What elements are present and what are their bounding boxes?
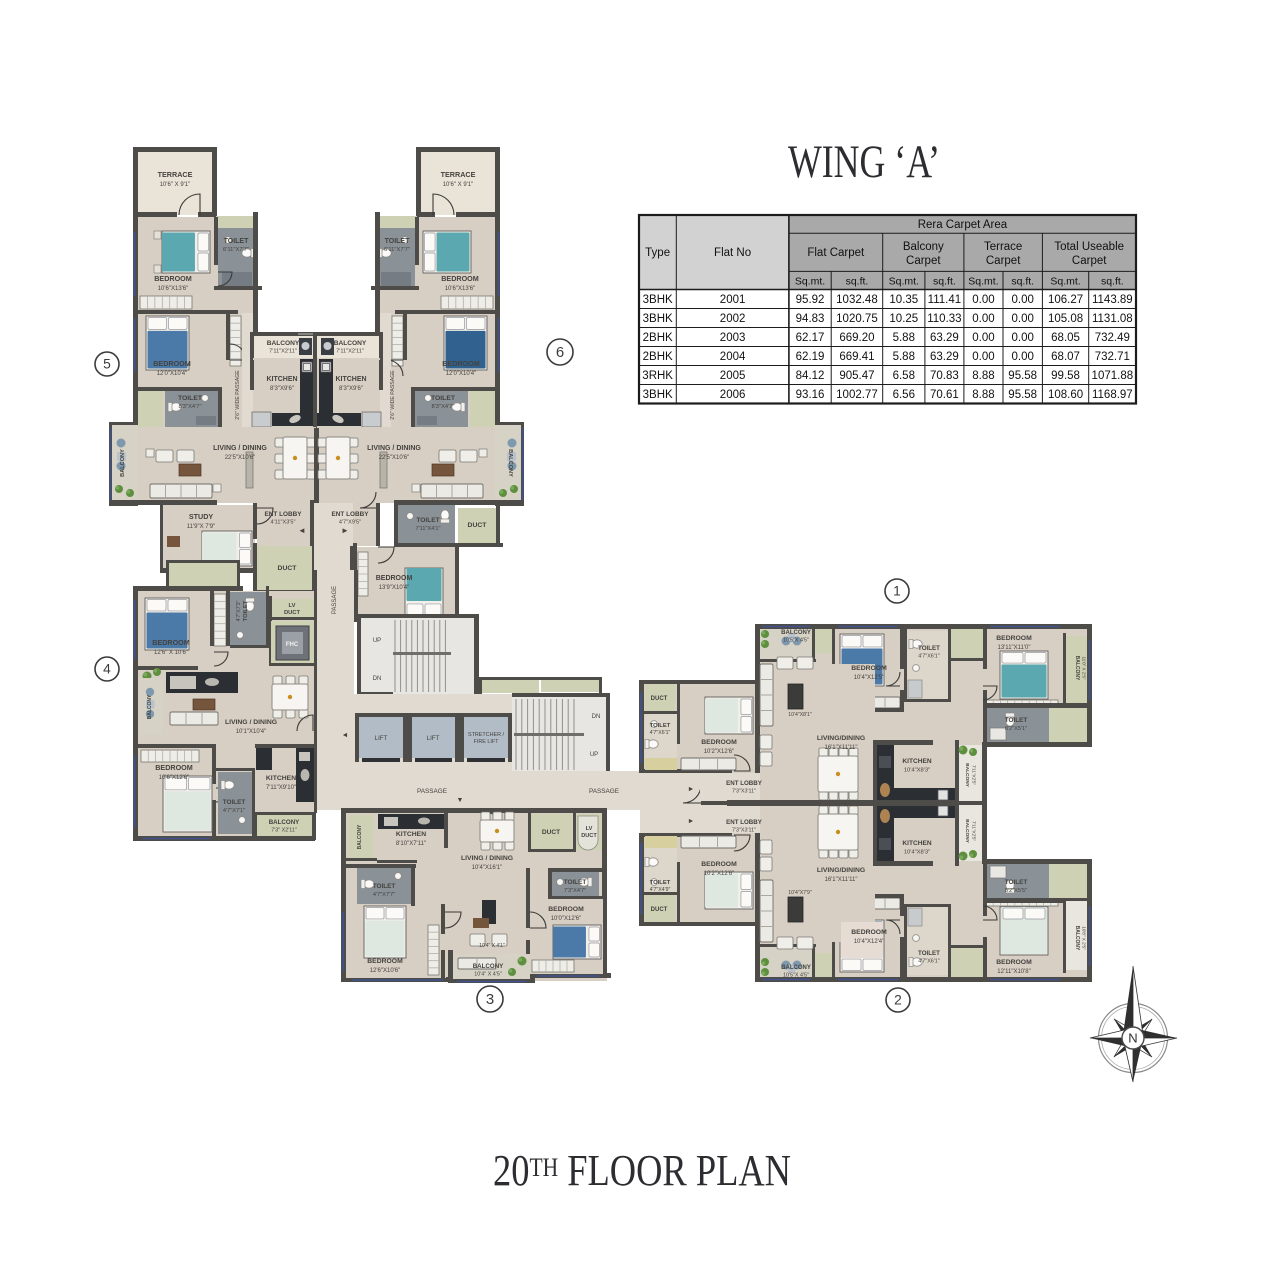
svg-text:62.19: 62.19: [796, 351, 825, 363]
svg-text:2001: 2001: [720, 294, 746, 306]
svg-text:◄: ◄: [298, 526, 306, 535]
svg-text:2002: 2002: [720, 313, 746, 325]
svg-text:13'11"X11'0": 13'11"X11'0": [997, 645, 1030, 651]
svg-text:2005: 2005: [720, 370, 746, 382]
svg-text:TERRACE: TERRACE: [441, 170, 476, 179]
svg-text:10'6"X13'6": 10'6"X13'6": [445, 286, 476, 292]
svg-text:0.00: 0.00: [972, 313, 994, 325]
svg-text:2BHK: 2BHK: [643, 351, 673, 363]
svg-text:4'7"X6'1": 4'7"X6'1": [918, 959, 940, 965]
svg-text:Carpet: Carpet: [986, 255, 1021, 267]
svg-text:1071.88: 1071.88: [1092, 370, 1134, 382]
svg-text:95.92: 95.92: [796, 294, 825, 306]
svg-text:LV: LV: [289, 603, 296, 609]
svg-text:11'9"X 7'9": 11'9"X 7'9": [187, 524, 215, 530]
svg-text:BALCONY: BALCONY: [964, 819, 970, 844]
svg-text:13'9"X10'4": 13'9"X10'4": [379, 585, 410, 591]
svg-text:4'7"X7'1": 4'7"X7'1": [223, 808, 245, 814]
svg-text:DN: DN: [373, 676, 382, 682]
svg-text:10'4" X 4'5": 10'4" X 4'5": [474, 972, 502, 978]
svg-text:63.29: 63.29: [930, 332, 959, 344]
svg-text:4'7"X9'5": 4'7"X9'5": [339, 520, 361, 526]
svg-text:PASSAGE: PASSAGE: [417, 788, 447, 795]
svg-text:8.88: 8.88: [972, 389, 994, 401]
svg-text:6.56: 6.56: [893, 389, 915, 401]
svg-text:TOILET: TOILET: [385, 238, 410, 245]
svg-text:95.58: 95.58: [1008, 370, 1037, 382]
svg-text:FHC: FHC: [286, 642, 299, 648]
svg-text:7'11"X2'5": 7'11"X2'5": [972, 821, 977, 841]
svg-text:7'11"X9'10": 7'11"X9'10": [266, 785, 296, 791]
svg-text:10'4"X8'3": 10'4"X8'3": [904, 850, 930, 856]
svg-text:94.83: 94.83: [796, 313, 825, 325]
svg-text:4'7"X7'7": 4'7"X7'7": [373, 892, 395, 898]
svg-text:UP: UP: [373, 638, 381, 644]
svg-text:TOILET: TOILET: [1005, 717, 1028, 724]
svg-text:DUCT: DUCT: [284, 610, 301, 616]
svg-text:Sq.mt.: Sq.mt.: [968, 276, 998, 288]
svg-text:BALCONY: BALCONY: [964, 763, 970, 788]
svg-text:ENT LOBBY: ENT LOBBY: [265, 511, 303, 518]
svg-text:2004: 2004: [720, 351, 746, 363]
svg-text:Sq.mt.: Sq.mt.: [1050, 276, 1080, 288]
svg-text:LIVING / DINING: LIVING / DINING: [225, 719, 277, 726]
svg-text:BALCONY: BALCONY: [267, 340, 300, 347]
svg-text:732.71: 732.71: [1095, 351, 1130, 363]
svg-text:10'4"X7'9": 10'4"X7'9": [788, 890, 812, 896]
svg-text:63.29: 63.29: [930, 351, 959, 363]
svg-text:TERRACE: TERRACE: [158, 170, 193, 179]
svg-text:DN: DN: [592, 714, 601, 720]
svg-text:BEDROOM: BEDROOM: [441, 274, 479, 283]
svg-text:sq.ft.: sq.ft.: [1011, 276, 1034, 288]
svg-text:Terrace: Terrace: [984, 241, 1022, 253]
svg-text:ENT LOBBY: ENT LOBBY: [332, 511, 370, 518]
svg-text:Total Useable: Total Useable: [1054, 241, 1124, 253]
svg-text:BEDROOM: BEDROOM: [367, 958, 403, 965]
svg-text:10'2"X12'6": 10'2"X12'6": [704, 871, 735, 877]
svg-text:0.00: 0.00: [972, 294, 994, 306]
svg-text:BEDROOM: BEDROOM: [851, 665, 887, 672]
svg-text:5: 5: [103, 357, 111, 372]
svg-text:6'11"X7'7": 6'11"X7'7": [384, 247, 410, 253]
svg-text:0.00: 0.00: [972, 332, 994, 344]
svg-text:BALCONY: BALCONY: [269, 819, 300, 826]
svg-text:10'4"X12'4": 10'4"X12'4": [854, 939, 885, 945]
svg-text:7'11"X2'5": 7'11"X2'5": [972, 765, 977, 785]
svg-text:TOILET: TOILET: [650, 880, 671, 886]
svg-text:LIFT: LIFT: [427, 735, 440, 742]
svg-text:BALCONY: BALCONY: [357, 824, 363, 849]
svg-text:BEDROOM: BEDROOM: [851, 929, 887, 936]
svg-text:Balcony: Balcony: [903, 241, 944, 253]
svg-text:0.00: 0.00: [972, 351, 994, 363]
svg-text:1: 1: [893, 584, 901, 599]
svg-text:10'1"X10'4": 10'1"X10'4": [236, 729, 267, 735]
svg-text:7'11"X4'1": 7'11"X4'1": [416, 526, 441, 532]
svg-text:16'1"X11'11": 16'1"X11'11": [824, 877, 857, 883]
svg-text:DUCT: DUCT: [651, 907, 668, 913]
svg-text:0.00: 0.00: [1012, 332, 1034, 344]
svg-text:DUCT: DUCT: [542, 829, 560, 836]
svg-text:2006: 2006: [720, 389, 746, 401]
svg-text:KITCHEN: KITCHEN: [902, 758, 932, 765]
svg-text:10'4"X16'1": 10'4"X16'1": [472, 865, 503, 871]
svg-text:1168.97: 1168.97: [1092, 389, 1133, 401]
svg-text:1143.89: 1143.89: [1092, 294, 1133, 306]
svg-text:106.27: 106.27: [1048, 294, 1083, 306]
svg-text:PASSAGE: PASSAGE: [332, 586, 338, 614]
svg-text:7'11"X2'11": 7'11"X2'11": [336, 349, 364, 355]
svg-text:732.49: 732.49: [1095, 332, 1130, 344]
svg-text:10'5"X 4'5": 10'5"X 4'5": [783, 638, 809, 644]
svg-text:110.33: 110.33: [927, 313, 961, 325]
svg-text:BEDROOM: BEDROOM: [442, 359, 480, 368]
svg-text:4'11"X3'5": 4'11"X3'5": [271, 520, 296, 526]
svg-text:Rera Carpet Area: Rera Carpet Area: [918, 219, 1008, 231]
svg-text:BALCONY: BALCONY: [507, 449, 513, 477]
svg-text:7'11"X2'11": 7'11"X2'11": [269, 349, 297, 355]
svg-text:108.60: 108.60: [1048, 389, 1083, 401]
svg-text:16'1"X11'11": 16'1"X11'11": [824, 745, 857, 751]
svg-text:ENT LOBBY: ENT LOBBY: [726, 780, 763, 787]
svg-text:UP: UP: [590, 752, 598, 758]
svg-text:99.58: 99.58: [1051, 370, 1080, 382]
svg-text:669.41: 669.41: [839, 351, 874, 363]
svg-text:8'3"X4'7": 8'3"X4'7": [178, 404, 201, 410]
svg-text:5.88: 5.88: [893, 332, 915, 344]
svg-text:BEDROOM: BEDROOM: [376, 575, 413, 582]
svg-text:0.00: 0.00: [1012, 313, 1034, 325]
svg-text:BALCONY: BALCONY: [473, 963, 504, 970]
svg-text:Sq.mt.: Sq.mt.: [795, 276, 825, 288]
svg-text:LIVING / DINING: LIVING / DINING: [461, 855, 513, 862]
svg-text:TOILET: TOILET: [223, 799, 246, 806]
svg-text:4: 4: [103, 662, 111, 677]
svg-text:12'6" X 10'6": 12'6" X 10'6": [154, 650, 188, 656]
svg-text:BEDROOM: BEDROOM: [152, 638, 190, 647]
svg-text:BALCONY: BALCONY: [1074, 656, 1080, 681]
svg-text:10'6" X 9'1": 10'6" X 9'1": [160, 182, 191, 188]
svg-text:TOILET: TOILET: [224, 238, 249, 245]
svg-text:2003: 2003: [720, 332, 746, 344]
svg-text:22'5"X10'6": 22'5"X10'6": [225, 455, 256, 461]
svg-text:1032.48: 1032.48: [836, 294, 878, 306]
svg-text:3BHK: 3BHK: [643, 294, 673, 306]
svg-text:8'3"X9'6": 8'3"X9'6": [339, 386, 363, 392]
svg-text:BEDROOM: BEDROOM: [154, 274, 192, 283]
svg-text:5.88: 5.88: [893, 351, 915, 363]
svg-text:10'6" X 9'1": 10'6" X 9'1": [443, 182, 474, 188]
svg-text:3BHK: 3BHK: [643, 313, 673, 325]
svg-text:▼: ▼: [457, 797, 464, 804]
svg-text:111.41: 111.41: [928, 294, 961, 306]
svg-text:8'2"X5'5": 8'2"X5'5": [1005, 888, 1027, 894]
svg-text:10.35: 10.35: [889, 294, 918, 306]
svg-text:70.61: 70.61: [930, 389, 959, 401]
svg-text:TOILET: TOILET: [918, 950, 940, 957]
svg-text:12'0"X10'4": 12'0"X10'4": [446, 371, 477, 377]
svg-text:BALCONY: BALCONY: [781, 965, 811, 971]
svg-text:1020.75: 1020.75: [836, 313, 878, 325]
svg-text:BALCONY: BALCONY: [1074, 926, 1080, 951]
svg-text:DUCT: DUCT: [468, 522, 488, 529]
svg-text:TOILET: TOILET: [650, 723, 671, 729]
svg-text:3RHK: 3RHK: [642, 370, 673, 382]
svg-text:BALCONY: BALCONY: [781, 630, 811, 636]
svg-text:93.16: 93.16: [796, 389, 825, 401]
svg-text:TOILET: TOILET: [1005, 879, 1028, 886]
svg-text:3BHK: 3BHK: [643, 389, 673, 401]
svg-text:68.05: 68.05: [1051, 332, 1080, 344]
svg-text:►: ►: [688, 818, 695, 825]
svg-text:WING ‘A’: WING ‘A’: [788, 136, 940, 188]
svg-text:1002.77: 1002.77: [836, 389, 878, 401]
svg-text:BEDROOM: BEDROOM: [153, 359, 191, 368]
svg-text:4'7"X7'3": 4'7"X7'3": [236, 601, 242, 622]
svg-text:6: 6: [556, 344, 564, 361]
svg-text:KITCHEN: KITCHEN: [335, 376, 366, 383]
svg-text:10'6"X13'6": 10'6"X13'6": [158, 286, 189, 292]
svg-text:◄: ◄: [342, 732, 349, 739]
svg-text:BEDROOM: BEDROOM: [155, 763, 193, 772]
svg-text:4'7"X6'1": 4'7"X6'1": [918, 654, 940, 660]
svg-text:N: N: [1128, 1031, 1137, 1046]
svg-text:LIFT: LIFT: [375, 735, 388, 742]
svg-text:1131.08: 1131.08: [1092, 313, 1133, 325]
svg-text:4'7"X6'1": 4'7"X6'1": [650, 730, 671, 736]
svg-text:TOILET: TOILET: [178, 395, 203, 402]
svg-text:BEDROOM: BEDROOM: [701, 861, 737, 868]
svg-text:68.07: 68.07: [1051, 351, 1080, 363]
svg-text:10.25: 10.25: [889, 313, 918, 325]
svg-text:10'5"X 4'5": 10'5"X 4'5": [783, 973, 809, 979]
svg-text:DUCT: DUCT: [278, 565, 298, 572]
svg-text:BEDROOM: BEDROOM: [996, 959, 1032, 966]
svg-text:sq.ft.: sq.ft.: [933, 276, 956, 288]
svg-text:BEDROOM: BEDROOM: [701, 739, 737, 746]
svg-text:10'4"X12'5": 10'4"X12'5": [854, 675, 885, 681]
svg-text:►: ►: [341, 526, 349, 535]
svg-text:PASSAGE: PASSAGE: [589, 788, 619, 795]
svg-text:84.12: 84.12: [796, 370, 825, 382]
svg-text:LIVING / DINING: LIVING / DINING: [367, 445, 421, 452]
svg-text:10'0"X12'6": 10'0"X12'6": [551, 916, 582, 922]
svg-text:STUDY: STUDY: [189, 512, 214, 521]
svg-text:8'3"X9'6": 8'3"X9'6": [270, 386, 294, 392]
svg-text:95.58: 95.58: [1008, 389, 1037, 401]
svg-text:Type: Type: [645, 247, 670, 259]
svg-text:11'0" X 2'5": 11'0" X 2'5": [1082, 656, 1087, 679]
svg-text:BEDROOM: BEDROOM: [548, 906, 584, 913]
svg-text:BALCONY: BALCONY: [120, 449, 126, 477]
svg-text:10'4"X8'3": 10'4"X8'3": [904, 768, 930, 774]
svg-text:6.58: 6.58: [893, 370, 915, 382]
svg-text:7'3" X2'11": 7'3" X2'11": [271, 828, 297, 834]
svg-text:KITCHEN: KITCHEN: [396, 831, 426, 838]
svg-text:905.47: 905.47: [839, 370, 874, 382]
svg-text:10'6"X12'6": 10'6"X12'6": [159, 775, 190, 781]
svg-text:10'4"X8'1": 10'4"X8'1": [788, 712, 812, 718]
svg-text:FIRE LIFT: FIRE LIFT: [474, 739, 500, 745]
svg-text:2BHK: 2BHK: [643, 332, 673, 344]
svg-text:12'11"X10'8": 12'11"X10'8": [997, 969, 1030, 975]
svg-text:STRETCHER /: STRETCHER /: [468, 732, 504, 738]
svg-text:10'4" X 4'1": 10'4" X 4'1": [479, 943, 505, 949]
svg-text:8.88: 8.88: [972, 370, 994, 382]
svg-text:6'11"X7'7": 6'11"X7'7": [223, 247, 249, 253]
svg-text:70.83: 70.83: [930, 370, 959, 382]
svg-text:22'5"X10'6": 22'5"X10'6": [379, 455, 410, 461]
svg-text:TOILET: TOILET: [416, 517, 439, 524]
svg-text:105.08: 105.08: [1048, 313, 1083, 325]
svg-text:62.17: 62.17: [796, 332, 825, 344]
svg-text:Carpet: Carpet: [906, 255, 941, 267]
svg-text:3: 3: [486, 991, 494, 1008]
svg-text:7'3"X3'11": 7'3"X3'11": [732, 789, 756, 795]
svg-text:12'0"X10'4": 12'0"X10'4": [157, 371, 188, 377]
svg-text:7'3"X3'11": 7'3"X3'11": [732, 828, 756, 834]
svg-text:Carpet: Carpet: [1072, 255, 1107, 267]
svg-text:sq.ft.: sq.ft.: [1101, 276, 1124, 288]
svg-text:7'3"X4'7": 7'3"X4'7": [564, 888, 586, 894]
svg-text:BEDROOM: BEDROOM: [996, 635, 1032, 642]
svg-text:DUCT: DUCT: [651, 696, 668, 702]
svg-text:BALCONY: BALCONY: [334, 340, 367, 347]
svg-text:Flat No: Flat No: [714, 247, 751, 259]
svg-text:TOILET: TOILET: [431, 395, 456, 402]
svg-text:2'6" WIDE PASSAGE: 2'6" WIDE PASSAGE: [390, 370, 396, 420]
svg-text:►: ►: [688, 786, 695, 793]
svg-text:TOILET: TOILET: [373, 883, 396, 890]
svg-text:KITCHEN: KITCHEN: [266, 775, 296, 782]
svg-text:0.00: 0.00: [1012, 294, 1034, 306]
svg-text:BALCONY: BALCONY: [147, 694, 153, 719]
svg-text:8'2"X5'1": 8'2"X5'1": [1005, 726, 1027, 732]
svg-text:2: 2: [894, 993, 902, 1008]
svg-text:TOILET: TOILET: [564, 879, 587, 886]
svg-text:0.00: 0.00: [1012, 351, 1034, 363]
svg-text:ENT LOBBY: ENT LOBBY: [726, 819, 763, 826]
svg-text:2'6" WIDE PASSAGE: 2'6" WIDE PASSAGE: [235, 370, 241, 420]
svg-text:4'7"X4'9": 4'7"X4'9": [650, 887, 671, 893]
svg-text:DUCT: DUCT: [581, 833, 597, 839]
svg-text:Flat Carpet: Flat Carpet: [807, 247, 865, 259]
svg-text:KITCHEN: KITCHEN: [266, 376, 297, 383]
svg-text:TOILET: TOILET: [243, 600, 249, 621]
svg-text:LV: LV: [586, 826, 593, 832]
svg-text:10'8" X 2'5": 10'8" X 2'5": [1082, 926, 1087, 950]
svg-text:LIVING/DINING: LIVING/DINING: [817, 735, 865, 742]
svg-text:sq.ft.: sq.ft.: [846, 276, 869, 288]
svg-text:TOILET: TOILET: [918, 645, 940, 652]
svg-text:Sq.mt.: Sq.mt.: [889, 276, 919, 288]
svg-text:LIVING/DINING: LIVING/DINING: [817, 867, 865, 874]
svg-text:12'6"X10'6": 12'6"X10'6": [370, 968, 401, 974]
svg-text:669.20: 669.20: [839, 332, 874, 344]
svg-text:8'3"X4'7": 8'3"X4'7": [431, 404, 454, 410]
svg-text:10'2"X12'6": 10'2"X12'6": [704, 749, 735, 755]
svg-text:KITCHEN: KITCHEN: [902, 840, 932, 847]
svg-text:LIVING / DINING: LIVING / DINING: [213, 445, 267, 452]
svg-text:8'10"X7'11": 8'10"X7'11": [396, 841, 426, 847]
